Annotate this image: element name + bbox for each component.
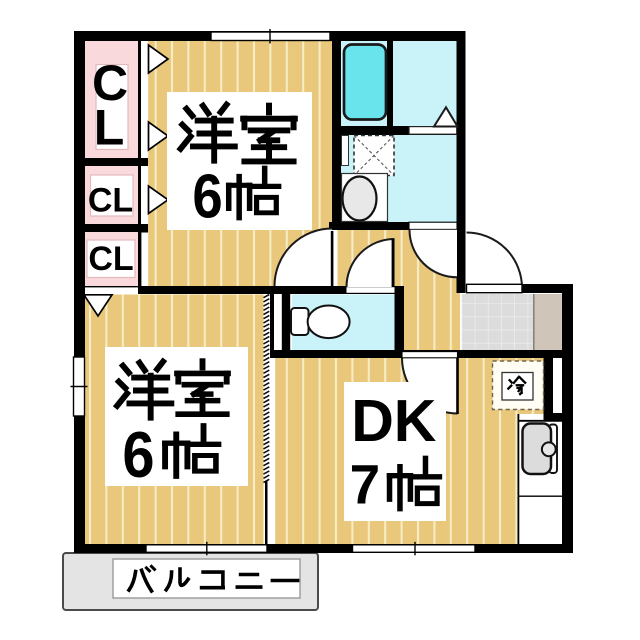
svg-text:6: 6: [192, 162, 222, 231]
svg-text:7: 7: [350, 453, 381, 516]
svg-text:L: L: [94, 100, 125, 156]
svg-text:6: 6: [122, 419, 154, 492]
svg-text:DK: DK: [351, 388, 437, 454]
svg-text:CL: CL: [88, 240, 133, 278]
svg-text:CL: CL: [88, 182, 133, 220]
